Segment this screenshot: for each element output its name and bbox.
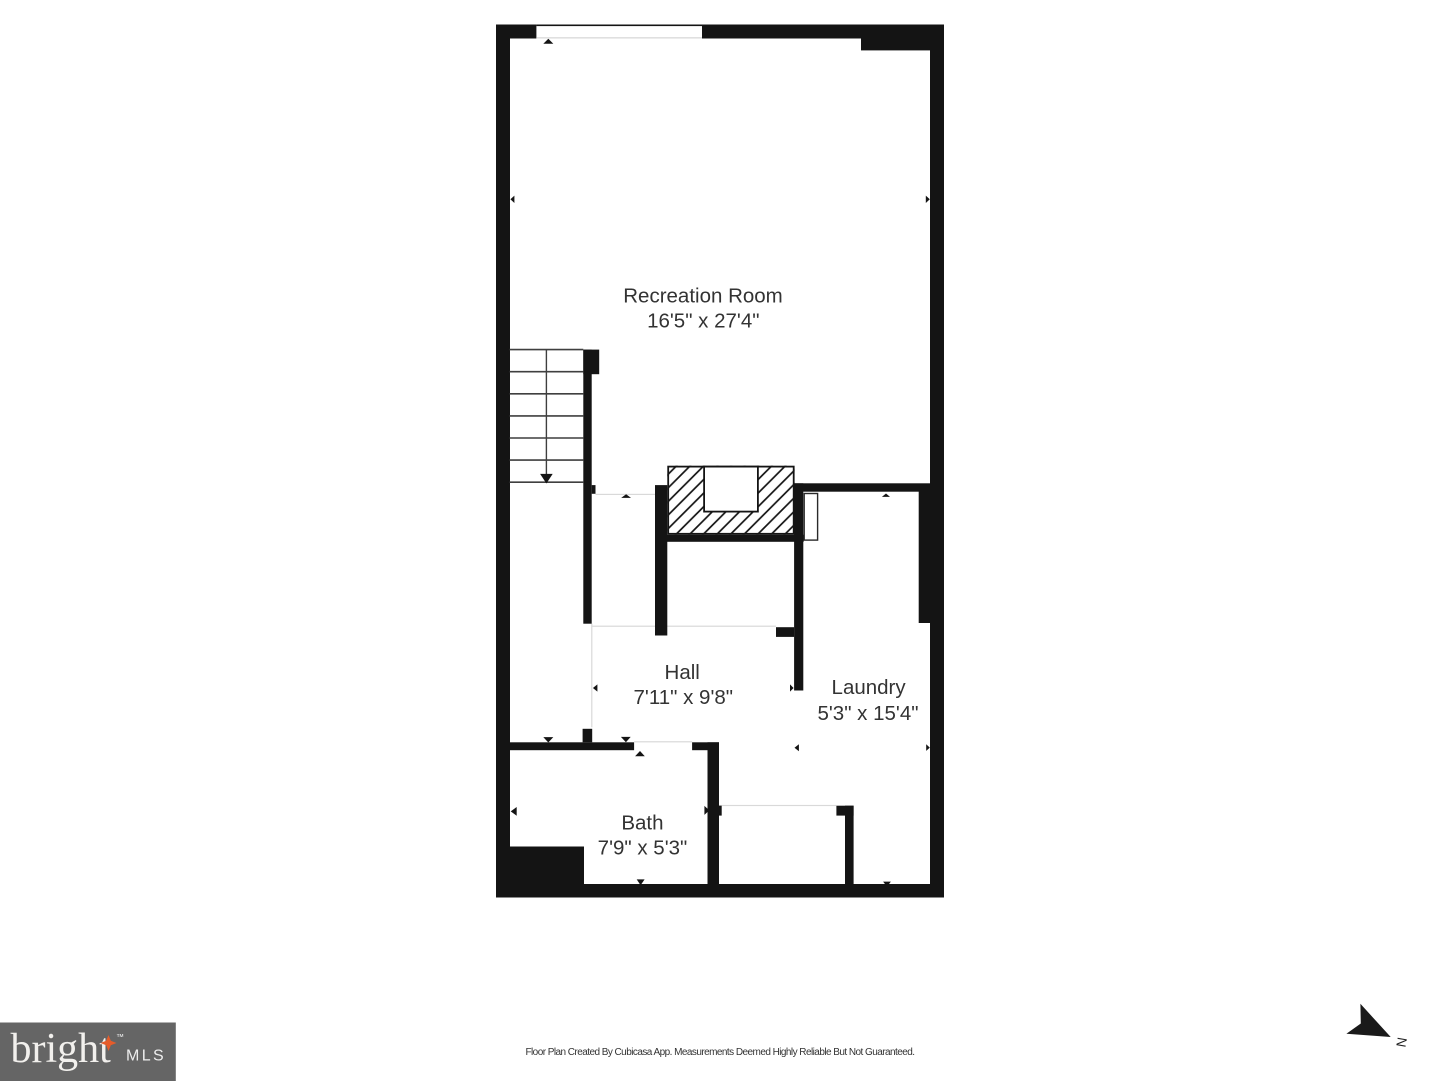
- svg-text:16'5" x 27'4": 16'5" x 27'4": [647, 310, 759, 333]
- svg-text:Laundry: Laundry: [832, 676, 907, 699]
- svg-text:5'3" x 15'4": 5'3" x 15'4": [817, 702, 918, 725]
- svg-text:Recreation Room: Recreation Room: [623, 285, 783, 308]
- svg-text:™: ™: [116, 1033, 124, 1042]
- svg-text:MLS: MLS: [126, 1048, 166, 1065]
- svg-text:Hall: Hall: [665, 661, 700, 684]
- svg-text:Floor Plan Created By Cubicasa: Floor Plan Created By Cubicasa App. Meas…: [525, 1047, 914, 1058]
- svg-text:bright: bright: [11, 1026, 112, 1072]
- svg-text:7'11" x 9'8": 7'11" x 9'8": [634, 686, 734, 709]
- svg-text:Bath: Bath: [621, 811, 663, 834]
- svg-text:7'9" x 5'3": 7'9" x 5'3": [598, 837, 688, 860]
